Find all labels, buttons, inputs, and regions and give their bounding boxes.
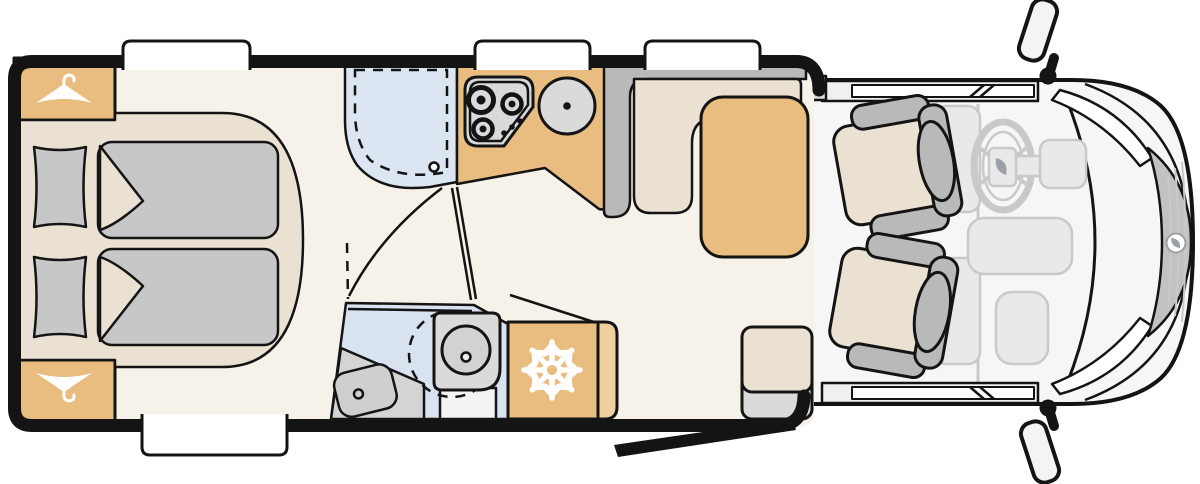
sink-icon: [539, 78, 595, 134]
refrigerator: [508, 322, 617, 419]
center-console-ghost: [968, 218, 1072, 274]
window: [645, 41, 760, 70]
wardrobe-bottom: [14, 360, 115, 421]
window: [475, 41, 590, 70]
dinette-table: [701, 97, 808, 257]
bed-pillow: [34, 257, 86, 337]
cab-door-bottom: [822, 383, 1038, 403]
drain-icon: [430, 163, 439, 172]
shower: [345, 58, 457, 188]
dashboard-ghost: [1040, 140, 1086, 188]
floorplan-svg: [0, 0, 1200, 484]
side-mirror-icon: [1016, 0, 1060, 84]
bed-duvet: [98, 249, 278, 345]
cab-section: [798, 0, 1193, 484]
cab-door-window: [852, 85, 1034, 97]
vanity-base: [440, 388, 496, 419]
cab-door-window: [852, 387, 1034, 399]
bed-duvet: [98, 142, 278, 238]
bed-pillow: [34, 147, 86, 227]
side-mirror-icon: [1018, 400, 1062, 484]
floorplan-stage: [0, 0, 1200, 484]
window: [142, 414, 287, 455]
footwell-ghost: [996, 292, 1048, 364]
cab-door-top: [822, 81, 1038, 101]
habitation-section: [14, 41, 819, 457]
window: [123, 41, 250, 70]
